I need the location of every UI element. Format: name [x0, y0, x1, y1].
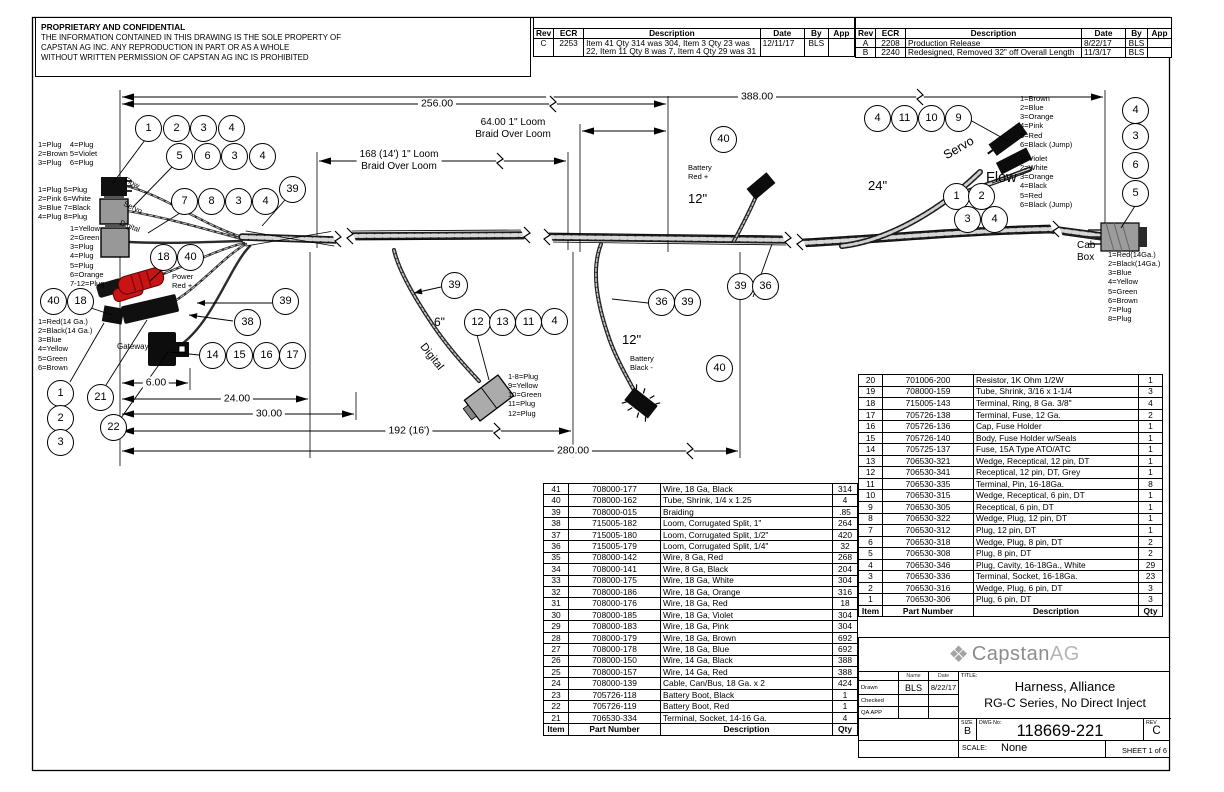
table-row: 18715005-143Terminal, Ring, 8 Ga. 3/8"4: [859, 398, 1163, 410]
checked-by: [899, 695, 929, 707]
harness-cables: [126, 169, 1102, 392]
revision-table-right: RevECRDescriptionDateByAppA2208Productio…: [855, 17, 1172, 58]
drawn-date: 8/22/17: [929, 681, 959, 695]
proprietary-notice: PROPRIETARY AND CONFIDENTIAL THE INFORMA…: [35, 17, 531, 77]
header-row: ItemPart NumberDescriptionQty: [544, 724, 858, 735]
table-row: 31708000-176Wire, 18 Ga, Red18: [544, 598, 858, 609]
rev-cell: REV C: [1144, 719, 1169, 741]
battery-black-connector: [621, 383, 662, 424]
notice-line: CAPSTAN AG INC. ANY REPRODUCTION IN PART…: [41, 43, 530, 53]
table-row: 22705726-119Battery Boot, Red1: [544, 701, 858, 712]
drawing-title: TITLE: Harness, Alliance RG-C Series, No…: [959, 672, 1171, 719]
title-line-2: RG-C Series, No Direct Inject: [959, 696, 1171, 710]
digital-connector: [101, 228, 129, 257]
servo-connector: [100, 199, 128, 224]
table-row: 27708000-178Wire, 18 Ga, Blue692: [544, 644, 858, 655]
table-row: B2240Redesigned, Removed 32" off Overall…: [856, 48, 1172, 58]
checked-date: [929, 695, 959, 707]
company-name: Capstan: [972, 643, 1050, 666]
table-row: 13706530-321Wedge, Receptical, 12 pin, D…: [859, 455, 1163, 467]
table-row: 17705726-138Terminal, Fuse, 12 Ga.2: [859, 409, 1163, 421]
title-block: ❖ CapstanAG Name Date Drawn BLS 8/22/17 …: [858, 637, 1170, 758]
table-row: 34708000-141Wire, 8 Ga, Black204: [544, 564, 858, 575]
table-row: 10706530-315Wedge, Receptical, 6 pin, DT…: [859, 490, 1163, 502]
header-row: RevECRDescriptionDateByApp: [534, 29, 855, 39]
table-row: 28708000-179Wire, 18 Ga, Brown692: [544, 632, 858, 643]
table-row: 19708000-159Tube, Shrink, 3/16 x 1-1/43: [859, 386, 1163, 398]
company-logo: ❖ CapstanAG: [859, 638, 1169, 672]
table-row: 14705725-137Fuse, 15A Type ATO/ATC1: [859, 444, 1163, 456]
table-row: 5706530-308Plug, 8 pin, DT2: [859, 548, 1163, 560]
digital-branch-connector: [460, 375, 514, 425]
notice-line: WITHOUT WRITTEN PERMISSION OF CAPSTAN AG…: [41, 53, 530, 63]
dwg-number: 118669-221: [977, 722, 1143, 741]
scale-cell: SCALE: None: [959, 741, 1106, 757]
table-row: 41708000-177Wire, 18 Ga, Black314: [544, 484, 858, 495]
size-value: B: [959, 725, 976, 737]
sheet-cell: SHEET 1 of 6: [1106, 741, 1169, 757]
company-suffix: AG: [1050, 643, 1080, 666]
table-row: 20701006-200Resistor, 1K Ohm 1/2W1: [859, 375, 1163, 387]
scale-value: None: [1001, 742, 1027, 754]
table-row: 35708000-142Wire, 8 Ga, Red268: [544, 552, 858, 563]
title-line-1: Harness, Alliance: [959, 679, 1171, 694]
qa-date: [929, 707, 959, 719]
empty-cell: [859, 719, 959, 741]
table-row: 15705726-140Body, Fuse Holder w/Seals1: [859, 432, 1163, 444]
qa-label: QA APP: [859, 707, 899, 719]
table-row: 38715005-182Loom, Corrugated Split, 1"26…: [544, 518, 858, 529]
header-row: RevECRDescriptionDateByApp: [856, 29, 1172, 39]
sheet-number: SHEET 1 of 6: [1122, 746, 1167, 755]
signoff-blank-cell: [859, 672, 899, 681]
signoff-table: Name Date Drawn BLS 8/22/17 Checked QA A…: [859, 672, 959, 719]
drawn-label: Drawn: [859, 681, 899, 695]
table-row: 24708000-139Cable, Can/Bus, 18 Ga. x 242…: [544, 678, 858, 689]
scale-label: SCALE:: [962, 745, 987, 752]
table-row: 40708000-162Tube, Shrink, 1/4 x 1.254: [544, 495, 858, 506]
bom-table-items-21-41: 41708000-177Wire, 18 Ga, Black3144070800…: [543, 483, 858, 736]
battery-red-connector: [747, 172, 776, 199]
table-row: 26708000-150Wire, 14 Ga, Black388: [544, 655, 858, 666]
table-row: 23705726-118Battery Boot, Black1: [544, 689, 858, 700]
name-column-header: Name: [899, 672, 929, 681]
table-row: 37715005-180Loom, Corrugated Split, 1/2"…: [544, 529, 858, 540]
table-row: 2706530-316Wedge, Plug, 6 pin, DT3: [859, 582, 1163, 594]
table-row: 25708000-157Wire, 14 Ga, Red388: [544, 667, 858, 678]
table-row: 3706530-336Terminal, Socket, 16-18Ga.23: [859, 571, 1163, 583]
table-row: 39708000-015Braiding.85: [544, 506, 858, 517]
capstan-diamond-icon: ❖: [948, 643, 969, 666]
table-row: 6706530-318Wedge, Plug, 8 pin, DT2: [859, 536, 1163, 548]
size-cell: SIZE B: [959, 719, 977, 741]
header-row: ItemPart NumberDescriptionQty: [859, 605, 1163, 617]
table-row: 9706530-305Receptical, 6 pin, DT1: [859, 502, 1163, 514]
date-column-header: Date: [929, 672, 959, 681]
flow-connector: [101, 177, 127, 196]
table-row: 4706530-346Plug, Cavity, 16-18Ga., White…: [859, 559, 1163, 571]
revision-table-left: RevECRDescriptionDateByAppC2253Item 41 Q…: [533, 17, 855, 57]
table-row: 21706530-334Terminal, Socket, 14-16 Ga.4: [544, 712, 858, 723]
table-row: 7706530-312Plug, 12 pin, DT1: [859, 525, 1163, 537]
table-row: A2208Production Release8/22/17BLS: [856, 38, 1172, 48]
table-row: 30708000-185Wire, 18 Ga, Violet304: [544, 609, 858, 620]
table-row: 29708000-183Wire, 18 Ga, Pink304: [544, 621, 858, 632]
checked-label: Checked: [859, 695, 899, 707]
gateway-connector: [148, 332, 189, 366]
table-row: 1706530-306Plug, 6 pin, DT3: [859, 594, 1163, 606]
table-row: 12706530-341Receptical, 12 pin, DT, Grey…: [859, 467, 1163, 479]
empty-cell: [859, 741, 959, 757]
rev-value: C: [1144, 725, 1169, 737]
notice-line: THE INFORMATION CONTAINED IN THIS DRAWIN…: [41, 33, 530, 43]
drawing-sheet: PROPRIETARY AND CONFIDENTIAL THE INFORMA…: [0, 0, 1224, 792]
drawn-by: BLS: [899, 681, 929, 695]
dwg-number-cell: DWG No: 118669-221: [977, 719, 1144, 741]
qa-by: [899, 707, 929, 719]
table-row: 16705726-136Cap, Fuse Holder1: [859, 421, 1163, 433]
table-row: C2253Item 41 Qty 314 was 304, Item 3 Qty…: [534, 38, 855, 56]
table-row: 33708000-175Wire, 18 Ga, White304: [544, 575, 858, 586]
table-row: 8706530-322Wedge, Plug, 12 pin, DT1: [859, 513, 1163, 525]
table-row: 36715005-179Loom, Corrugated Split, 1/4"…: [544, 541, 858, 552]
cab-box-connector: [1086, 223, 1147, 251]
notice-title: PROPRIETARY AND CONFIDENTIAL: [41, 22, 530, 33]
power-connector: [102, 305, 124, 324]
bom-table-items-1-20: 20701006-200Resistor, 1K Ohm 1/2W1197080…: [858, 374, 1163, 617]
table-row: 32708000-186Wire, 18 Ga, Orange316: [544, 586, 858, 597]
table-row: 11706530-335Terminal, Pin, 16-18Ga.8: [859, 478, 1163, 490]
